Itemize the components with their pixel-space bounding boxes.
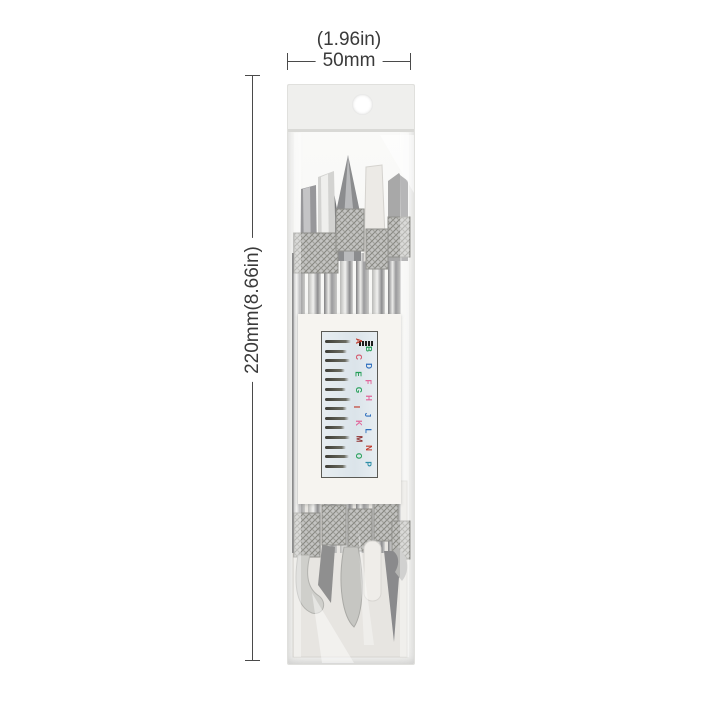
tip-row [325, 436, 350, 439]
tip-guide-card: ABCDEFGHIJKLMNOP [298, 314, 401, 504]
tip-letter-H: H [364, 396, 372, 402]
tip-row [325, 359, 350, 362]
tip-letter-F: F [363, 380, 371, 385]
product-photo: (1.96in) 50mm 220mm(8.66in) [0, 0, 720, 720]
tip-letter-P: P [364, 461, 372, 466]
tip-letter-I: I [352, 405, 360, 407]
tip-letter-L: L [363, 429, 371, 434]
tip-letter-A: A [354, 338, 362, 344]
tip-row [325, 407, 347, 410]
tip-row [325, 446, 346, 449]
tip-row [325, 340, 351, 343]
tip-row [325, 455, 349, 458]
width-label-mm: 50mm [316, 50, 383, 72]
tip-letter-C: C [354, 355, 362, 361]
tip-row [325, 398, 351, 401]
width-dimension-left-tick [287, 53, 288, 70]
height-dimension-top-cap [245, 75, 260, 76]
tip-row [325, 465, 347, 468]
tip-letter-O: O [354, 453, 362, 459]
bag-header-flap [288, 85, 414, 132]
tip-letter-K: K [354, 420, 362, 426]
tip-row [325, 388, 346, 391]
plastic-bag: ABCDEFGHIJKLMNOP [287, 84, 415, 665]
height-dimension-bottom-cap [245, 660, 260, 661]
tip-letter-E: E [354, 371, 362, 376]
hang-hole [352, 94, 373, 115]
tip-letter-J: J [363, 413, 371, 417]
tip-letter-N: N [364, 445, 372, 451]
tip-row [325, 417, 349, 420]
tip-letter-G: G [354, 387, 362, 393]
height-label: 220mm(8.66in) [240, 238, 266, 382]
tip-letter-M: M [354, 436, 362, 443]
tip-letter-B: B [364, 346, 372, 352]
width-label-inches: (1.96in) [287, 30, 411, 50]
tip-row [325, 350, 347, 353]
tip-row [325, 378, 349, 381]
tip-row [325, 369, 345, 372]
width-dimension-right-tick [410, 53, 411, 70]
tip-chart: ABCDEFGHIJKLMNOP [321, 331, 378, 478]
tip-letter-D: D [364, 363, 372, 369]
tip-row [325, 426, 345, 429]
